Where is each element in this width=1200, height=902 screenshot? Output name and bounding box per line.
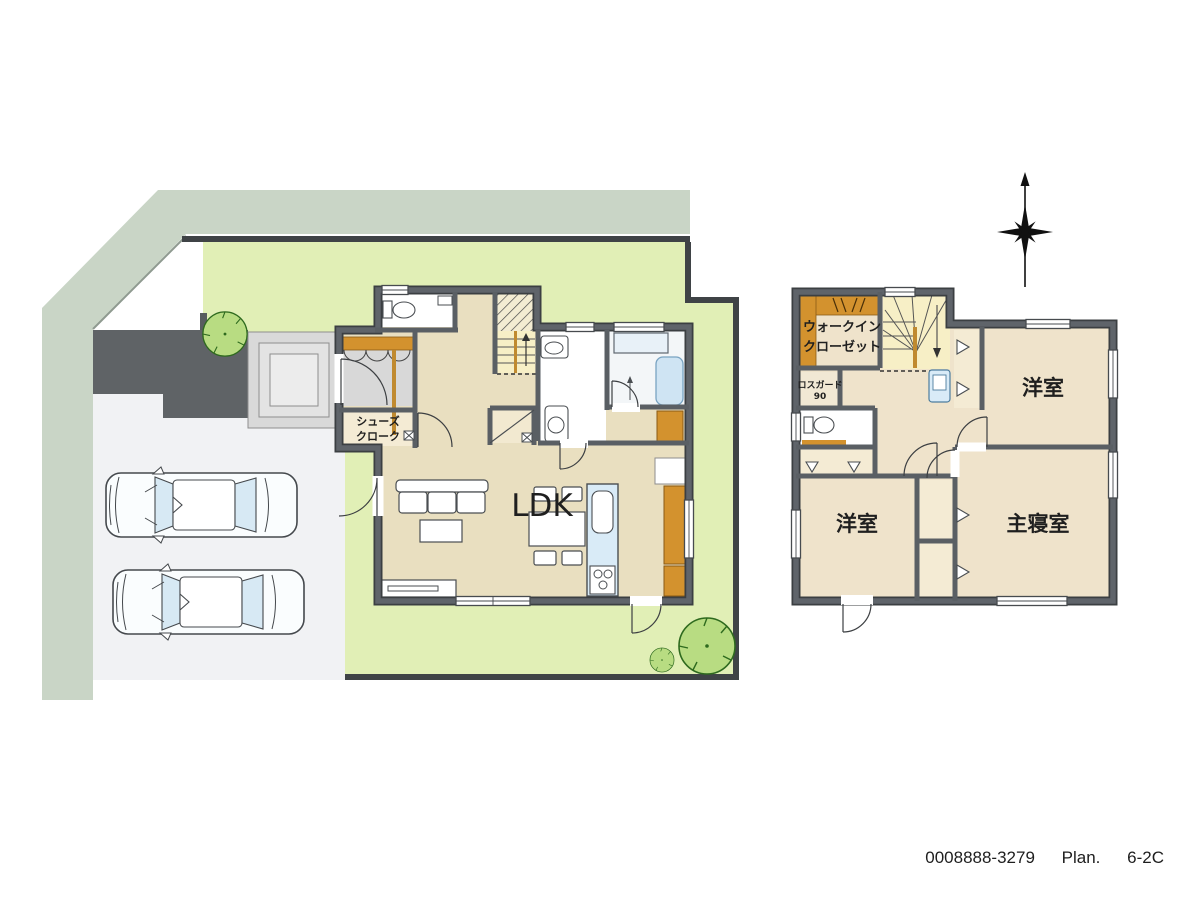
north-compass-icon (997, 172, 1053, 287)
plan-code: 0008888-3279 (925, 848, 1035, 868)
stairs1-hatch (497, 294, 535, 331)
boundary-line-top (182, 236, 690, 242)
western-room-bottom-label: 洋室 (836, 512, 878, 536)
tree-entrance (203, 312, 247, 356)
linen-cabinet (657, 411, 683, 441)
floorplan-page: LDK シューズ クローク (0, 0, 1200, 902)
washbasin-2f (929, 370, 950, 402)
plan-footer: 0008888-3279 Plan. 6-2C (925, 848, 1164, 868)
closet-master-1 (917, 480, 953, 539)
coffee-table (420, 520, 462, 542)
kitchen-counter (587, 484, 618, 596)
washbasin (541, 336, 568, 358)
car-2 (113, 564, 304, 640)
ldk-label: LDK (511, 488, 573, 524)
western-room-top-label: 洋室 (1022, 376, 1064, 400)
toilet2-shelf (802, 440, 846, 445)
tree-garden-small (650, 648, 674, 672)
corner-sink (438, 296, 452, 305)
toilet2-fixture (804, 417, 834, 433)
shoes-closet-label-1: シューズ (356, 414, 399, 428)
master-bedroom-label: 主寝室 (1007, 512, 1070, 536)
tv-board (380, 580, 456, 597)
plan-number: 6-2C (1127, 848, 1164, 868)
floorplan-drawing: LDK シューズ クローク (0, 0, 1200, 902)
shoes-closet-label-2: クローク (356, 430, 400, 443)
wic-label-1: ウォークイン (803, 320, 881, 335)
floor2-plan: ウォークイン クローゼット ロスガード 90 洋室 洋室 主寝室 (792, 288, 1118, 633)
floor1-plan: LDK シューズ クローク (335, 286, 694, 634)
car-1 (106, 467, 297, 543)
tree-garden-large (679, 618, 735, 674)
plan-word: Plan. (1062, 848, 1101, 868)
entrance-porch (248, 332, 340, 428)
stove (590, 566, 615, 594)
rosgard-label-2: 90 (814, 392, 827, 402)
washing-machine (545, 406, 568, 442)
wic-label-2: クローゼット (803, 339, 881, 355)
entry-closet-shelf (343, 337, 413, 350)
rosgard-label-1: ロスガード (797, 379, 842, 391)
closet-master-2 (917, 543, 953, 598)
sofa (396, 480, 488, 513)
